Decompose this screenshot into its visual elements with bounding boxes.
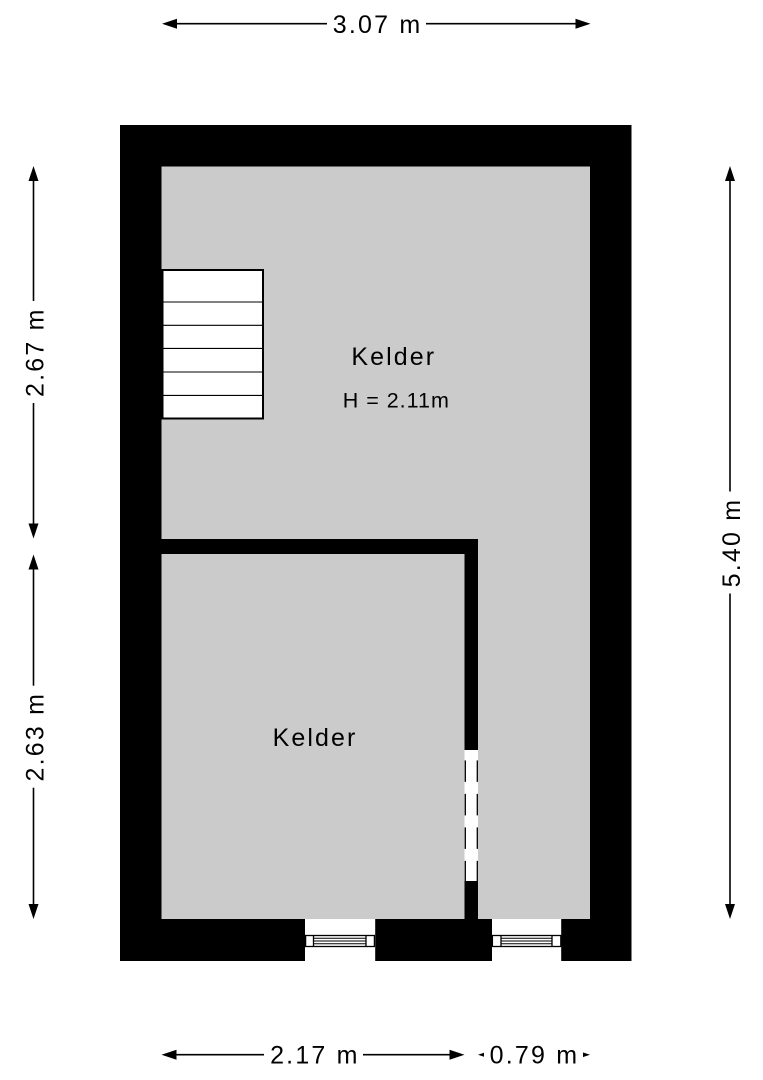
svg-text:0.79 m: 0.79 m bbox=[490, 1042, 580, 1070]
svg-text:5.40 m: 5.40 m bbox=[718, 498, 746, 588]
svg-text:2.63 m: 2.63 m bbox=[21, 692, 49, 782]
svg-text:Kelder: Kelder bbox=[351, 343, 436, 371]
svg-text:Kelder: Kelder bbox=[273, 724, 358, 752]
svg-text:3.07 m: 3.07 m bbox=[333, 11, 423, 39]
svg-text:H = 2.11m: H = 2.11m bbox=[343, 388, 450, 412]
svg-text:2.17 m: 2.17 m bbox=[270, 1042, 360, 1070]
svg-text:2.67 m: 2.67 m bbox=[21, 307, 49, 397]
